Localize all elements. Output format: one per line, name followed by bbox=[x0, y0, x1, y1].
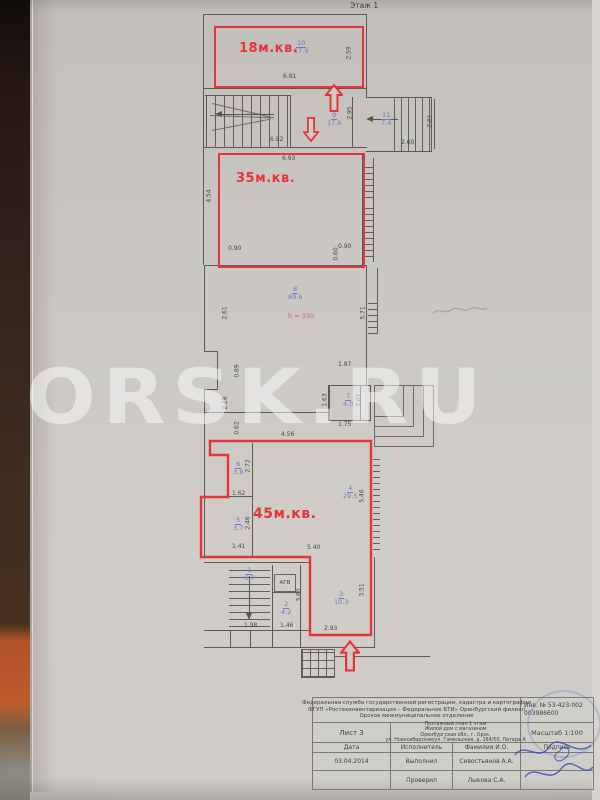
apartment-45-outline bbox=[195, 436, 380, 641]
top-shadow bbox=[30, 0, 600, 12]
photo-of-floor-plan: АГВ ORSK.RU Этаж 1 h = 330 18м.кв. 35м.к… bbox=[0, 0, 600, 800]
dimension-label: 2.95 bbox=[348, 106, 354, 119]
wall-segment bbox=[434, 99, 435, 149]
ceiling-height-note: h = 330 bbox=[288, 312, 314, 320]
wall-segment bbox=[352, 97, 353, 147]
wall-segment bbox=[366, 151, 432, 152]
entrance-arrow-down-icon bbox=[303, 116, 319, 143]
col-header-executor: Исполнитель bbox=[391, 743, 453, 753]
org-line: Орское межмуниципальное отделение bbox=[359, 713, 473, 720]
room-label-9: 917.6 bbox=[327, 112, 341, 128]
entrance-arrow-up-icon bbox=[325, 84, 343, 112]
window-hatch bbox=[368, 300, 377, 334]
role-value: Выполнил bbox=[391, 753, 453, 771]
wall-segment bbox=[204, 265, 205, 351]
wall-segment bbox=[373, 158, 374, 262]
dimension-label: 2.60 bbox=[401, 140, 414, 146]
dimension-label: 2.81 bbox=[428, 114, 434, 127]
org-line: Федеральная служба государственной регис… bbox=[302, 700, 531, 707]
room-label-8: 889.6 bbox=[288, 286, 302, 302]
wall-segment bbox=[203, 14, 367, 15]
watermark: ORSK.RU bbox=[26, 352, 488, 441]
entrance-steps-grid bbox=[301, 649, 335, 678]
stair-arrow-line bbox=[222, 114, 274, 115]
handwritten-signature bbox=[505, 733, 597, 793]
apartment-18-label: 18м.кв. bbox=[239, 41, 298, 56]
room-label-11: 117.4 bbox=[381, 112, 391, 128]
wall-segment bbox=[203, 147, 367, 148]
dimension-label: 2.61 bbox=[223, 306, 229, 319]
apartment-18-outline bbox=[214, 26, 364, 88]
pencil-note bbox=[430, 300, 490, 322]
document-title-cell: Поэтажный план 1 этаж Жилой дом с магази… bbox=[391, 723, 521, 743]
date-value: 03.04.2014 bbox=[313, 753, 391, 771]
role-value-2: Проверил bbox=[391, 771, 453, 789]
floor-label: Этаж 1 bbox=[350, 1, 378, 10]
wall-segment bbox=[290, 95, 291, 147]
dimension-label: 4.54 bbox=[207, 189, 213, 202]
paper-right-edge bbox=[592, 0, 600, 800]
col-header-date: Дата bbox=[313, 743, 391, 753]
wall-segment bbox=[203, 14, 204, 148]
stair-arrow-head-icon bbox=[366, 116, 373, 122]
entrance-arrow-up-icon bbox=[340, 640, 360, 672]
org-cell: Федеральная служба государственной регис… bbox=[313, 698, 521, 723]
wall-segment bbox=[366, 14, 367, 98]
org-line: ФГУП «Ростехинвентаризация – Федеральное… bbox=[308, 707, 525, 714]
apartment-35-label: 35м.кв. bbox=[236, 171, 295, 186]
stair-arrow-head-icon bbox=[215, 111, 222, 117]
wall-segment bbox=[377, 268, 378, 334]
dimension-label: 5.71 bbox=[361, 306, 367, 319]
wall-segment bbox=[203, 148, 204, 265]
sheet-cell: Лист 3 bbox=[313, 723, 391, 743]
dimension-label: 6.92 bbox=[270, 137, 283, 143]
apartment-45-label: 45м.кв. bbox=[253, 506, 316, 522]
date-value-2 bbox=[313, 771, 391, 789]
